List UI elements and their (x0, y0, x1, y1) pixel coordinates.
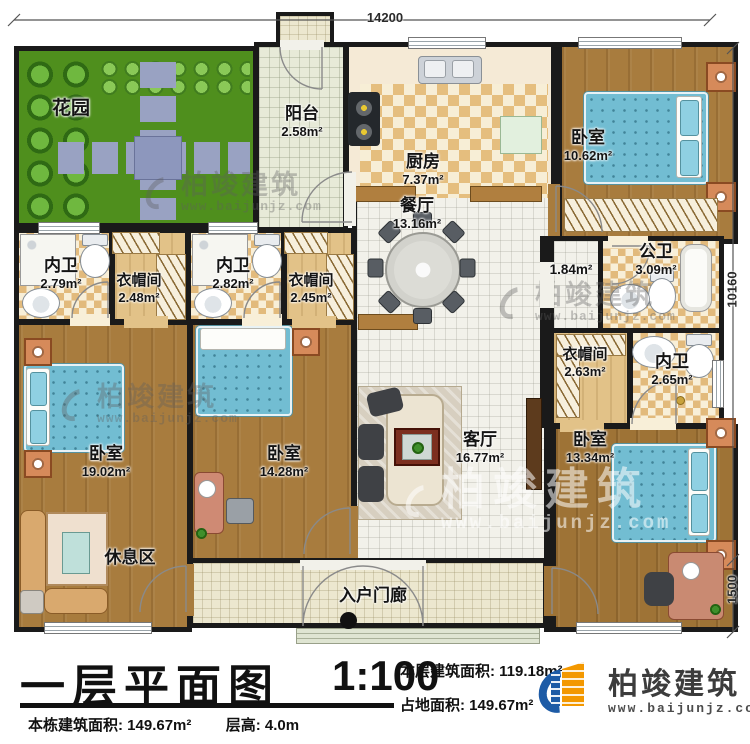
kitchen-sink-basin-left (424, 60, 446, 78)
plant (710, 604, 721, 615)
sink (610, 284, 650, 314)
table-lamp (198, 480, 216, 498)
window (38, 222, 100, 234)
garden-trees (22, 58, 94, 220)
dimension-top-width: 14200 (348, 10, 422, 25)
logo-building-shape (562, 662, 584, 706)
room-label-porch: 入户门廊 (318, 586, 428, 606)
window (44, 622, 152, 634)
cloak-rack (284, 232, 328, 254)
dining-chair (460, 259, 476, 278)
room-label-cloak-left-2: 衣帽间 2.45m² (268, 272, 354, 305)
kitchen-sink-basin-right (452, 60, 474, 78)
room-label-living: 客厅 16.77m² (432, 430, 528, 465)
sofa (44, 588, 108, 614)
building-area-line: 本栋建筑面积: 149.67m² 层高: 4.0m (28, 714, 299, 735)
window (576, 622, 682, 634)
sink (194, 288, 232, 318)
stove-burner-1 (356, 100, 372, 116)
bed-cushion (680, 140, 699, 176)
sink (22, 288, 60, 318)
cloak-rack (112, 232, 160, 254)
bed-cushion (691, 452, 708, 491)
window (208, 222, 258, 234)
nightstand (706, 62, 736, 92)
armchair (358, 466, 384, 502)
room-label-rest-area: 休息区 (92, 548, 168, 568)
dining-chair (368, 259, 384, 278)
garden-path-center-slab (134, 136, 182, 180)
company-url: www.baijunjz.com (608, 701, 750, 716)
room-label-kitchen: 厨房 7.37m² (378, 152, 468, 187)
window (408, 37, 486, 49)
title-underline (20, 703, 394, 708)
room-label-bedroom-bottom-left: 卧室 19.02m² (58, 444, 154, 479)
bed-cushion (680, 100, 699, 136)
porch-column (340, 612, 357, 629)
nightstand (292, 328, 320, 356)
nightstand (706, 418, 736, 448)
room-label-dining: 餐厅 13.16m² (362, 196, 472, 231)
plant (412, 442, 424, 454)
room-label-balcony: 阳台 2.58m² (262, 104, 342, 139)
room-label-bedroom-bottom-mid: 卧室 14.28m² (236, 444, 332, 479)
land-area-line: 占地面积: 149.67m² (400, 694, 533, 715)
entrance-steps (296, 628, 540, 644)
side-table (20, 590, 44, 614)
company-logo: 柏竣建筑 www.baijunjz.com (540, 660, 750, 724)
table-lamp (682, 562, 700, 580)
nightstand (24, 450, 52, 478)
bed-cushion (30, 372, 47, 406)
tv-cabinet (526, 398, 542, 490)
floor-plan-page: 花园 阳台 2.58m² 厨房 7.37m² 餐厅 13.16m² 卧室 10.… (0, 0, 750, 744)
company-name: 柏竣建筑 (608, 668, 750, 701)
nightstand (24, 338, 52, 366)
wardrobe-rack (564, 198, 718, 232)
floor-area-line: 本层建筑面积: 119.18m² (400, 660, 563, 681)
bed-pillow-area (200, 328, 286, 350)
room-label-cloak-right: 衣帽间 2.63m² (540, 346, 630, 379)
desk-chair (644, 572, 674, 606)
water-heater-valve (676, 396, 685, 405)
room-label-hallway: 1.84m² (544, 262, 598, 278)
bed-cushion (691, 494, 708, 533)
desk-monitor (226, 498, 254, 524)
room-label-cloak-left-1: 衣帽间 2.48m² (96, 272, 182, 305)
room-label-garden: 花园 (36, 98, 106, 120)
baijun-logo-icon (540, 660, 598, 724)
room-label-bath-left-2: 内卫 2.82m² (190, 256, 276, 291)
room-label-bedroom-bottom-right: 卧室 13.34m² (542, 430, 638, 465)
logo-building-shape-small (551, 674, 560, 706)
dimension-right-height: 10160 (725, 260, 740, 320)
dining-sideboard (358, 314, 418, 330)
plant (196, 528, 207, 539)
kitchen-fridge (500, 116, 542, 154)
bed-cushion (30, 410, 47, 444)
stove-burner-2 (356, 124, 372, 140)
toilet (648, 278, 676, 314)
room-label-bedroom-top-right: 卧室 10.62m² (538, 128, 638, 163)
armchair (358, 424, 384, 460)
window (578, 37, 682, 49)
dining-chair (413, 308, 432, 324)
kitchen-half-counter-right (470, 186, 542, 202)
room-label-public-bath: 公卫 3.09m² (616, 242, 696, 277)
window (712, 360, 724, 408)
room-label-bath-right: 内卫 2.65m² (632, 352, 712, 387)
coffee-table (62, 532, 90, 574)
dimension-porch-depth: 1500 (725, 560, 740, 620)
room-label-bath-left-1: 内卫 2.79m² (18, 256, 104, 291)
